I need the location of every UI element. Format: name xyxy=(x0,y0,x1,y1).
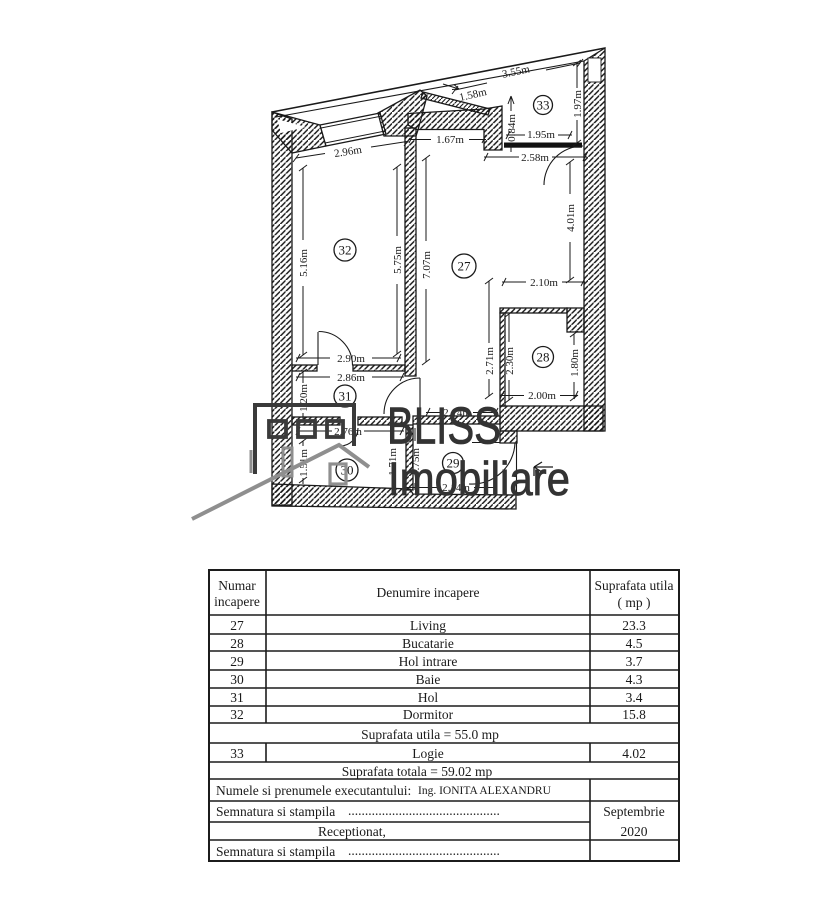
svg-text:Baie: Baie xyxy=(416,672,441,687)
svg-text:4.3: 4.3 xyxy=(626,672,643,687)
svg-text:27: 27 xyxy=(230,618,244,633)
svg-text:33: 33 xyxy=(230,746,244,761)
svg-text:31: 31 xyxy=(339,389,352,404)
svg-text:2.10m: 2.10m xyxy=(530,277,558,289)
svg-text:4.02: 4.02 xyxy=(622,746,646,761)
svg-text:Receptionat,: Receptionat, xyxy=(318,824,386,839)
svg-text:31: 31 xyxy=(230,690,244,705)
svg-text:Suprafata utila: Suprafata utila xyxy=(594,578,673,593)
svg-text:2.71m: 2.71m xyxy=(484,347,496,375)
svg-text:1.80m: 1.80m xyxy=(569,349,581,377)
svg-text:Numar: Numar xyxy=(218,578,256,593)
svg-text:32: 32 xyxy=(230,707,244,722)
svg-text:Suprafata totala = 59.02 mp: Suprafata totala = 59.02 mp xyxy=(342,764,493,779)
svg-text:Dormitor: Dormitor xyxy=(403,707,454,722)
svg-text:27: 27 xyxy=(458,259,472,274)
svg-text:1.95m: 1.95m xyxy=(527,129,555,141)
svg-text:Living: Living xyxy=(410,618,446,633)
svg-text:7.07m: 7.07m xyxy=(421,251,433,279)
svg-text:5.16m: 5.16m xyxy=(298,249,310,277)
svg-text:Bucatarie: Bucatarie xyxy=(402,636,454,651)
svg-text:Septembrie: Septembrie xyxy=(603,804,664,819)
svg-text:28: 28 xyxy=(230,636,244,651)
svg-text:Semnatura si stampila: Semnatura si stampila xyxy=(216,844,335,859)
svg-text:Hol intrare: Hol intrare xyxy=(399,654,458,669)
svg-text:..............................: ........................................… xyxy=(348,803,500,818)
svg-text:5.75m: 5.75m xyxy=(392,246,404,274)
svg-text:( mp ): ( mp ) xyxy=(618,595,651,610)
svg-text:incapere: incapere xyxy=(214,594,260,609)
svg-text:4.01m: 4.01m xyxy=(565,204,577,232)
svg-text:32: 32 xyxy=(339,243,352,258)
svg-text:1.20m: 1.20m xyxy=(298,384,310,412)
svg-text:2.30m: 2.30m xyxy=(504,347,516,375)
svg-text:Semnatura si stampila: Semnatura si stampila xyxy=(216,804,335,819)
svg-text:2.58m: 2.58m xyxy=(521,152,549,164)
svg-text:Hol: Hol xyxy=(418,690,438,705)
svg-text:Logie: Logie xyxy=(412,746,444,761)
svg-text:0.84m: 0.84m xyxy=(506,114,518,142)
svg-text:28: 28 xyxy=(537,350,550,365)
svg-text:15.8: 15.8 xyxy=(622,707,646,722)
svg-text:3.4: 3.4 xyxy=(626,690,643,705)
svg-text:2.90m: 2.90m xyxy=(337,353,365,365)
svg-text:23.3: 23.3 xyxy=(622,618,646,633)
svg-text:Suprafata utila = 55.0 mp: Suprafata utila = 55.0 mp xyxy=(361,727,499,742)
svg-text:Numele si prenumele executantu: Numele si prenumele executantului: xyxy=(216,783,411,798)
svg-text:33: 33 xyxy=(537,98,550,113)
svg-text:1.97m: 1.97m xyxy=(572,90,584,118)
svg-text:2020: 2020 xyxy=(621,824,648,839)
svg-text:2.86m: 2.86m xyxy=(337,372,365,384)
svg-text:1.67m: 1.67m xyxy=(436,134,464,146)
svg-text:Imobiliare: Imobiliare xyxy=(388,452,570,505)
svg-text:4.5: 4.5 xyxy=(626,636,643,651)
svg-text:29: 29 xyxy=(230,654,244,669)
svg-text:Ing. IONITA ALEXANDRU: Ing. IONITA ALEXANDRU xyxy=(418,785,552,797)
svg-text:30: 30 xyxy=(230,672,244,687)
svg-text:3.7: 3.7 xyxy=(626,654,643,669)
svg-text:Denumire incapere: Denumire incapere xyxy=(376,585,479,600)
svg-text:2.00m: 2.00m xyxy=(528,390,556,402)
svg-text:..............................: ........................................… xyxy=(348,843,500,858)
svg-text:BLISS: BLISS xyxy=(387,397,501,455)
